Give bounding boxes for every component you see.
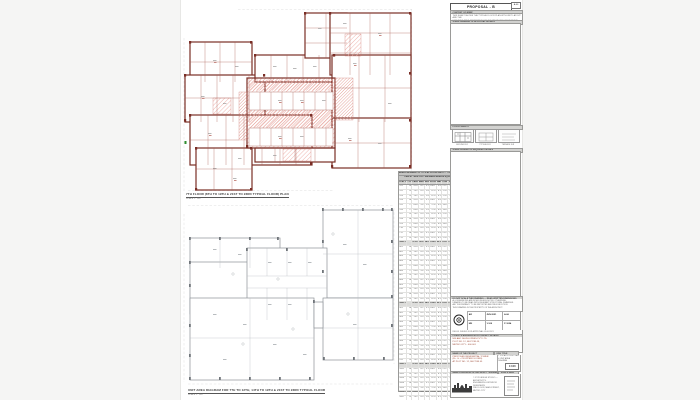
table-cell: 801 [399, 246, 407, 250]
table-cell: 808 [399, 279, 407, 283]
table-cell: 95.4 [412, 218, 419, 222]
table-cell: 972.8 [412, 241, 419, 245]
table-cell: 72.8 [430, 330, 437, 334]
note-line: THIS DRAWING IS THE PROPERTY OF THE ARCH… [453, 307, 522, 309]
table-cell: 1002 [399, 373, 407, 377]
table-cell: 106.7 [430, 185, 437, 189]
table-cell: 78.2 [412, 288, 419, 292]
table-cell: 806 [399, 270, 407, 274]
project-name: PROPOSED RESIDENTIAL TOWER (B + G + 23 U… [451, 355, 498, 371]
table-cell: 911 [399, 354, 407, 358]
table-cell: 64.8 [412, 391, 419, 395]
table-cell: SUB TOTAL [399, 241, 407, 245]
table-cell: 106.7 [430, 246, 437, 250]
table-cell: 1090.2 [430, 302, 437, 306]
table-cell: 106.7 [430, 382, 437, 386]
table-cell: 106.7 [430, 293, 437, 297]
table-cell: 1090.2 [430, 241, 437, 245]
table-cell: 72.8 [430, 265, 437, 269]
table-cell: 64.8 [412, 387, 419, 391]
table-cell: 78.2 [412, 316, 419, 320]
table-cell: 87.4 [430, 396, 437, 400]
field-drgno: DRG NO A-06 [502, 311, 520, 321]
table-cell: 78.2 [412, 274, 419, 278]
area-statement-table: AREA STATEMENT OF TYPICAL FLOOR UNITS — … [398, 171, 456, 392]
table-cell: 106.7 [430, 368, 437, 372]
table-cell: 72.8 [430, 270, 437, 274]
table-cell: 703 [399, 195, 407, 199]
table-cell: 64.8 [412, 326, 419, 330]
table-cell: 78.2 [412, 396, 419, 400]
table-cell: 95.4 [412, 307, 419, 311]
table-cell: 78.2 [412, 359, 419, 363]
table-cell: 87.4 [430, 255, 437, 259]
table-cell: 78.2 [412, 335, 419, 339]
table-cell: 64.8 [412, 204, 419, 208]
firm-row: © XYZ DESIGN STUDIO — ARCHITECTS, ENGINE… [450, 374, 521, 398]
floor-sheet-thumbnails: GROUND FLR TYPICAL FLR TERRACE FLR [452, 129, 518, 146]
table-cell: 802 [399, 251, 407, 255]
table-cell: 710 [399, 227, 407, 231]
drawing-sheet-page: 7TH FLOOR (8TH TO 19TH & 21ST TO 23RD TY… [0, 0, 700, 400]
table-cell: 87.4 [430, 213, 437, 217]
table-cell: 972.8 [412, 302, 419, 306]
stage-panel [450, 151, 521, 297]
approval-panel [450, 23, 521, 125]
field-drawn: DRAWN AR [467, 311, 485, 321]
table-cell: 106.7 [430, 321, 437, 325]
top-plan-caption-block: 7TH FLOOR (8TH TO 19TH & 21ST TO 23RD TY… [186, 192, 289, 200]
table-cell: 95.4 [412, 354, 419, 358]
table-cell: 87.4 [430, 312, 437, 316]
table-cell: 64.8 [412, 209, 419, 213]
unit-outlines [190, 210, 393, 380]
bottom-plan-caption-block: UNIT AREA DIAGRAM FOR 7TH TO 12TH, 14TH … [188, 388, 325, 396]
table-cell: 64.8 [412, 265, 419, 269]
table-cell: 910 [399, 349, 407, 353]
table-cell: 87.4 [430, 335, 437, 339]
table-cell: FLAT NO [399, 181, 407, 184]
area-table-body: FLAT NOTYPECARPETBALC.EBVTB.U.AWALLCOMM.… [399, 181, 455, 400]
table-cell: 711 [399, 232, 407, 236]
table-cell: 87.4 [430, 190, 437, 194]
field-checked: CHECKED MK [467, 320, 485, 330]
table-cell: 87.4 [430, 251, 437, 255]
table-cell: 87.4 [430, 237, 437, 241]
table-row: 1007B78.26.42.887.48.117.6105.0 [399, 396, 455, 400]
table-cell: 912 [399, 359, 407, 363]
table-cell: 1090.2 [430, 363, 437, 367]
field-date: DATE JUN 2021 [485, 311, 503, 321]
mini-plan-icon [476, 131, 496, 143]
table-cell: 72.8 [430, 326, 437, 330]
table-cell: SUB TOTAL [399, 302, 407, 306]
table-cell: 72.8 [430, 223, 437, 227]
table-cell: 72.8 [430, 387, 437, 391]
firm-address: © XYZ DESIGN STUDIO — ARCHITECTS, ENGINE… [473, 374, 502, 397]
table-cell: 64.8 [412, 270, 419, 274]
table-cell: 78.2 [412, 377, 419, 381]
mini-notes-icon [499, 131, 519, 143]
table-cell: 95.4 [412, 340, 419, 344]
titleblock-logo-fields: DRAWN AR DATE JUN 2021 DRG NO A-06 CHECK… [450, 311, 521, 331]
table-cell: 72.8 [430, 209, 437, 213]
table-cell: 702 [399, 190, 407, 194]
seal-box [504, 376, 519, 396]
firm-line: 2ND FLOOR, MAIN STREET, METRO CITY [473, 387, 502, 392]
table-cell: 87.4 [430, 316, 437, 320]
typical-floor-plan-drawing [183, 8, 413, 192]
table-cell: 78.2 [412, 195, 419, 199]
bottom-plan-scale: SCALE 1 : 100 [188, 394, 325, 396]
table-cell: B.U.A [430, 181, 437, 184]
table-cell: 78.2 [412, 213, 419, 217]
field-projno: PROJ NO P-1024 [502, 320, 520, 330]
table-cell: 95.4 [412, 382, 419, 386]
table-cell: 95.4 [412, 279, 419, 283]
table-cell: CARPET [412, 181, 419, 184]
scale-chip: 1:100 [505, 363, 519, 370]
table-cell: 810 [399, 288, 407, 292]
table-cell: 106.7 [430, 260, 437, 264]
table-cell: 87.4 [430, 195, 437, 199]
table-cell: 908 [399, 340, 407, 344]
table-cell: 1007 [399, 396, 407, 400]
table-cell: 106.7 [430, 199, 437, 203]
table-cell: 78.2 [412, 312, 419, 316]
drg-title-cell: TYPICAL FLOOR PLAN & UNIT AREA DIAGRAM 1… [498, 355, 521, 371]
table-cell: 811 [399, 293, 407, 297]
building-skyline-icon [452, 379, 472, 393]
table-cell: 87.4 [430, 373, 437, 377]
top-plan-caption: 7TH FLOOR (8TH TO 19TH & 21ST TO 23RD TY… [186, 192, 289, 198]
table-cell: 95.4 [412, 260, 419, 264]
table-cell: 64.8 [412, 223, 419, 227]
project-row: PROPOSED RESIDENTIAL TOWER (B + G + 23 U… [450, 355, 521, 372]
table-cell: 901 [399, 307, 407, 311]
floor-sheet-thumb: TERRACE FLR [498, 129, 518, 146]
table-cell: 705 [399, 204, 407, 208]
table-cell: 95.4 [412, 368, 419, 372]
table-cell: 804 [399, 260, 407, 264]
table-cell: 809 [399, 284, 407, 288]
table-cell: 972.8 [412, 363, 419, 367]
table-cell: 706 [399, 209, 407, 213]
table-cell: 72.8 [430, 284, 437, 288]
bottom-plan-caption: UNIT AREA DIAGRAM FOR 7TH TO 12TH, 14TH … [188, 388, 325, 394]
table-cell: 106.7 [430, 354, 437, 358]
table-cell: 812 [399, 298, 407, 302]
table-cell: 106.7 [430, 307, 437, 311]
table-cell: 87.4 [430, 349, 437, 353]
table-cell: 803 [399, 255, 407, 259]
client-line: METRO CITY - 400 001 [453, 344, 522, 347]
table-cell: 707 [399, 213, 407, 217]
table-cell: 64.8 [412, 330, 419, 334]
table-cell: 95.4 [412, 232, 419, 236]
table-cell: 95.4 [412, 293, 419, 297]
table-cell: 95.4 [412, 246, 419, 250]
table-cell: 904 [399, 321, 407, 325]
table-cell: 87.4 [430, 298, 437, 302]
table-cell: 87.4 [430, 359, 437, 363]
circular-logo-icon [453, 314, 465, 326]
table-cell: 1003 [399, 377, 407, 381]
unit-area-diagram-drawing [183, 204, 395, 386]
firm-logo [451, 374, 473, 397]
table-cell: 78.2 [412, 227, 419, 231]
table-cell: 78.2 [412, 251, 419, 255]
project-line: AT PLOT NO. 12, SECTOR 45 [453, 361, 497, 364]
table-cell: 95.4 [412, 321, 419, 325]
table-cell: 95.4 [412, 185, 419, 189]
table-cell: 712 [399, 237, 407, 241]
table-cell: 1001 [399, 368, 407, 372]
seal-scribble-icon [505, 377, 517, 395]
table-cell: 704 [399, 199, 407, 203]
firm-emblem [451, 311, 467, 330]
table-cell: 78.2 [412, 298, 419, 302]
drawing-fields: DRAWN AR DATE JUN 2021 DRG NO A-06 CHECK… [467, 311, 520, 330]
table-cell: 78.2 [412, 373, 419, 377]
top-plan-scale: SCALE 1 : 100 [186, 198, 289, 200]
table-cell: 807 [399, 274, 407, 278]
table-cell: 1005 [399, 387, 407, 391]
floor-sheet-thumb: GROUND FLR [452, 129, 472, 146]
table-cell: 902 [399, 312, 407, 316]
table-cell: 64.8 [412, 345, 419, 349]
table-cell: 95.4 [412, 199, 419, 203]
table-cell: 106.7 [430, 340, 437, 344]
table-cell: 106.7 [430, 279, 437, 283]
table-cell: 1006 [399, 391, 407, 395]
table-cell: 72.8 [430, 391, 437, 395]
table-cell: 72.8 [430, 204, 437, 208]
table-cell: 78.2 [412, 237, 419, 241]
table-cell: 87.4 [430, 274, 437, 278]
table-cell: 106.7 [430, 218, 437, 222]
field-scale: SCALE 1:100 [485, 320, 503, 330]
table-cell: 907 [399, 335, 407, 339]
table-cell: 72.8 [430, 345, 437, 349]
table-cell: 78.2 [412, 349, 419, 353]
table-cell: 1004 [399, 382, 407, 386]
table-cell: 708 [399, 218, 407, 222]
table-cell: SUB TOTAL [399, 363, 407, 367]
table-cell: 87.4 [430, 377, 437, 381]
table-cell: 906 [399, 330, 407, 334]
table-cell: 805 [399, 265, 407, 269]
table-cell: 701 [399, 185, 407, 189]
drg-title-text: TYPICAL FLOOR PLAN & UNIT AREA DIAGRAM [498, 355, 519, 362]
table-cell: 64.8 [412, 284, 419, 288]
table-cell: 78.2 [412, 190, 419, 194]
table-cell: 905 [399, 326, 407, 330]
table-cell: 78.2 [412, 255, 419, 259]
table-cell: 87.4 [430, 288, 437, 292]
table-cell: 909 [399, 345, 407, 349]
sheet-number-box: A-06 [511, 2, 521, 9]
floor-sheet-thumb: TYPICAL FLR [475, 129, 495, 146]
table-cell: 709 [399, 223, 407, 227]
table-cell: 87.4 [430, 227, 437, 231]
green-door-mark [185, 141, 187, 144]
table-cell: 106.7 [430, 232, 437, 236]
table-cell: 903 [399, 316, 407, 320]
mini-plan-icon [453, 131, 473, 143]
